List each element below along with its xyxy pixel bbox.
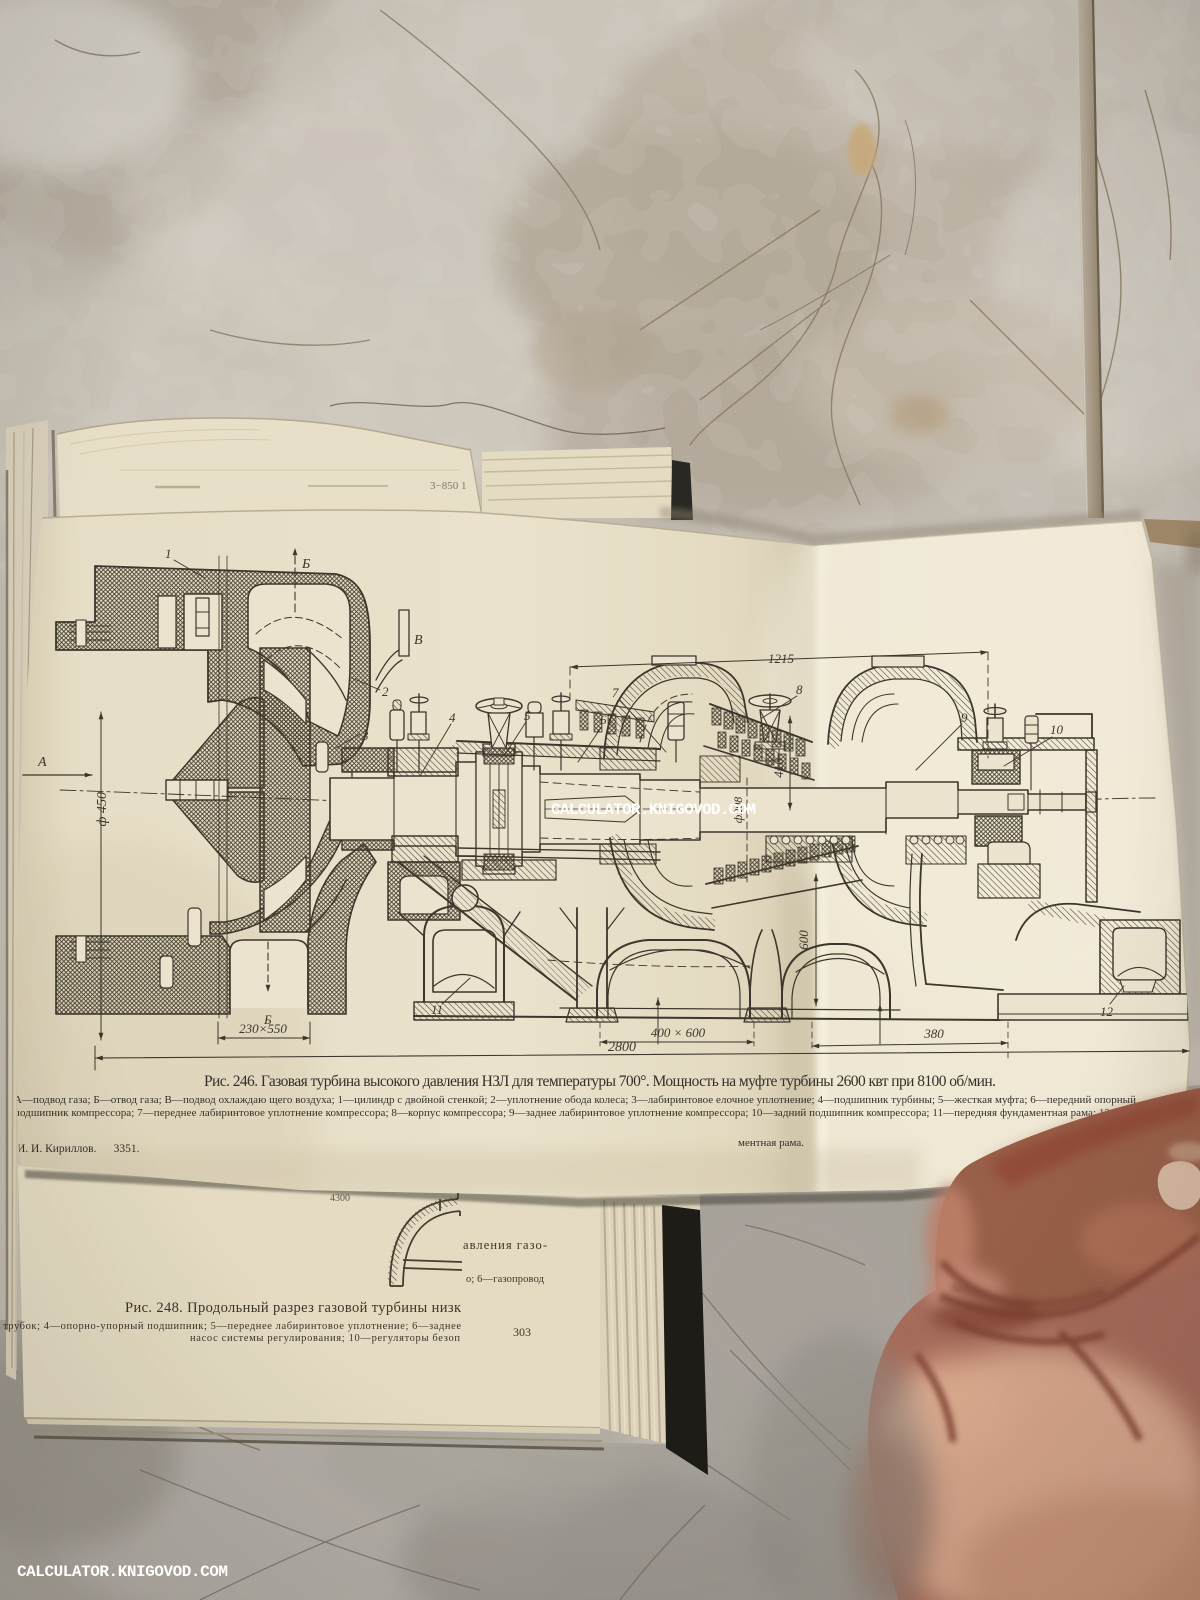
svg-text:CALCULATOR.KNIGOVOD.COM: CALCULATOR.KNIGOVOD.COM: [551, 801, 756, 819]
svg-text:CALCULATOR.KNIGOVOD.COM: CALCULATOR.KNIGOVOD.COM: [17, 1563, 228, 1581]
